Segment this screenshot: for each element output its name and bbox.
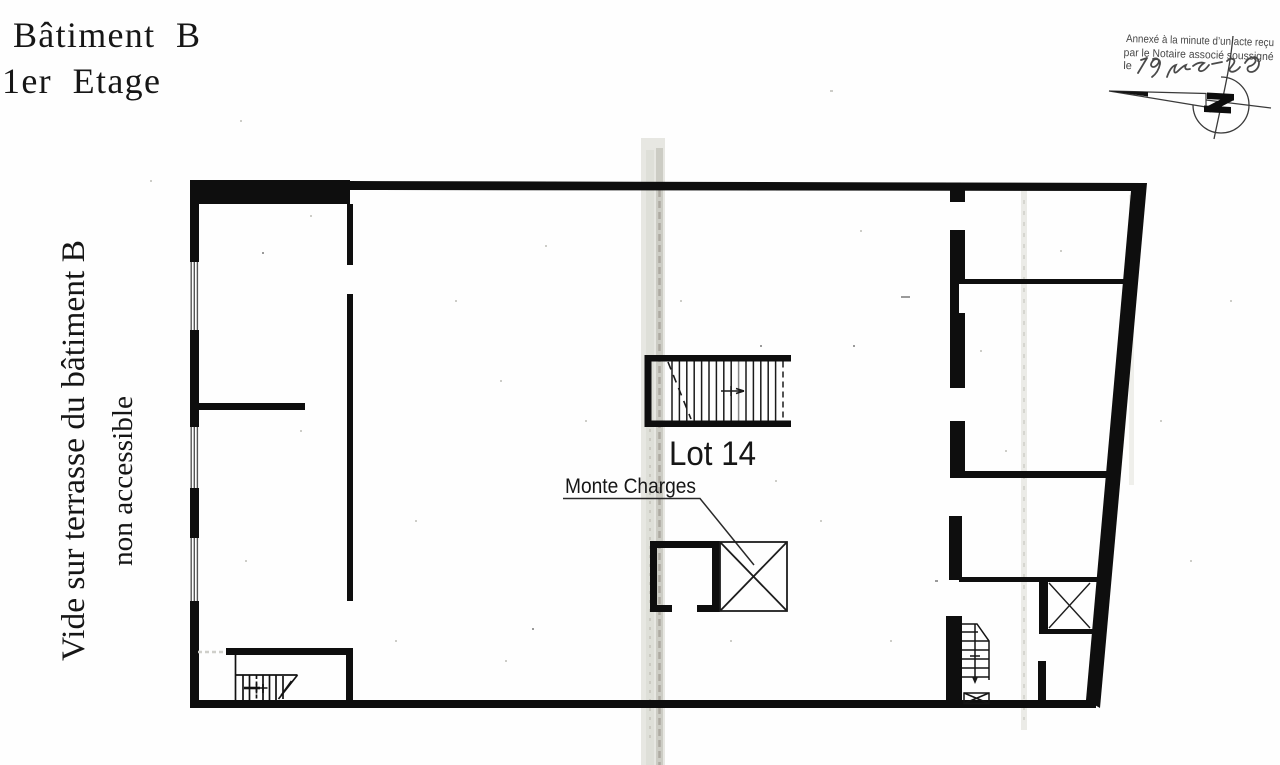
- svg-text:Monte Charges: Monte Charges: [565, 475, 696, 498]
- svg-text:le: le: [1123, 60, 1132, 72]
- svg-text:1er Etage: 1er Etage: [2, 61, 160, 101]
- svg-text:Lot 14: Lot 14: [669, 435, 756, 473]
- svg-text:Vide sur terrasse du bâtiment: Vide sur terrasse du bâtiment B: [56, 240, 92, 661]
- svg-text:non accessible: non accessible: [108, 396, 139, 566]
